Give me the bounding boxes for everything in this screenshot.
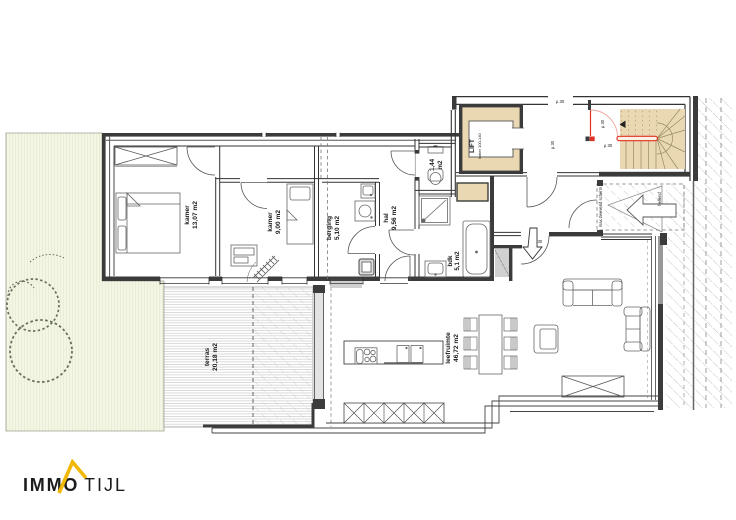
svg-text:µ 30: µ 30 [556,99,565,104]
svg-text:TIJL: TIJL [84,475,127,495]
svg-text:berging: berging [326,216,333,240]
svg-text:9,00 m2: 9,00 m2 [275,210,282,235]
svg-text:LIFT: LIFT [469,139,476,153]
svg-text:IMMO: IMMO [23,475,79,495]
svg-text:kamer: kamer [267,212,274,232]
svg-text:terras: terras [204,348,211,367]
svg-text:µ 30: µ 30 [604,143,613,148]
svg-text:5,10 m2: 5,10 m2 [334,216,341,241]
svg-text:µ 30: µ 30 [600,119,605,128]
svg-text:max zwevend scherm: max zwevend scherm [598,186,603,227]
svg-text:m2: m2 [437,160,444,170]
svg-text:kamer: kamer [184,205,191,225]
svg-text:µ 30: µ 30 [550,140,555,149]
svg-text:46,72 m2: 46,72 m2 [453,334,460,362]
svg-text:hal: hal [383,213,390,223]
svg-text:9,56 m2: 9,56 m2 [391,206,398,231]
svg-text:koker 100-140: koker 100-140 [477,132,482,158]
svg-text:20,18 m2: 20,18 m2 [212,343,219,371]
svg-text:leefruimte: leefruimte [445,332,452,364]
svg-text:bdk: bdk [447,255,454,267]
svg-text:13,07 m2: 13,07 m2 [192,201,199,229]
svg-text:5,1 m2: 5,1 m2 [454,251,461,271]
svg-text:hellend: hellend [657,192,662,206]
